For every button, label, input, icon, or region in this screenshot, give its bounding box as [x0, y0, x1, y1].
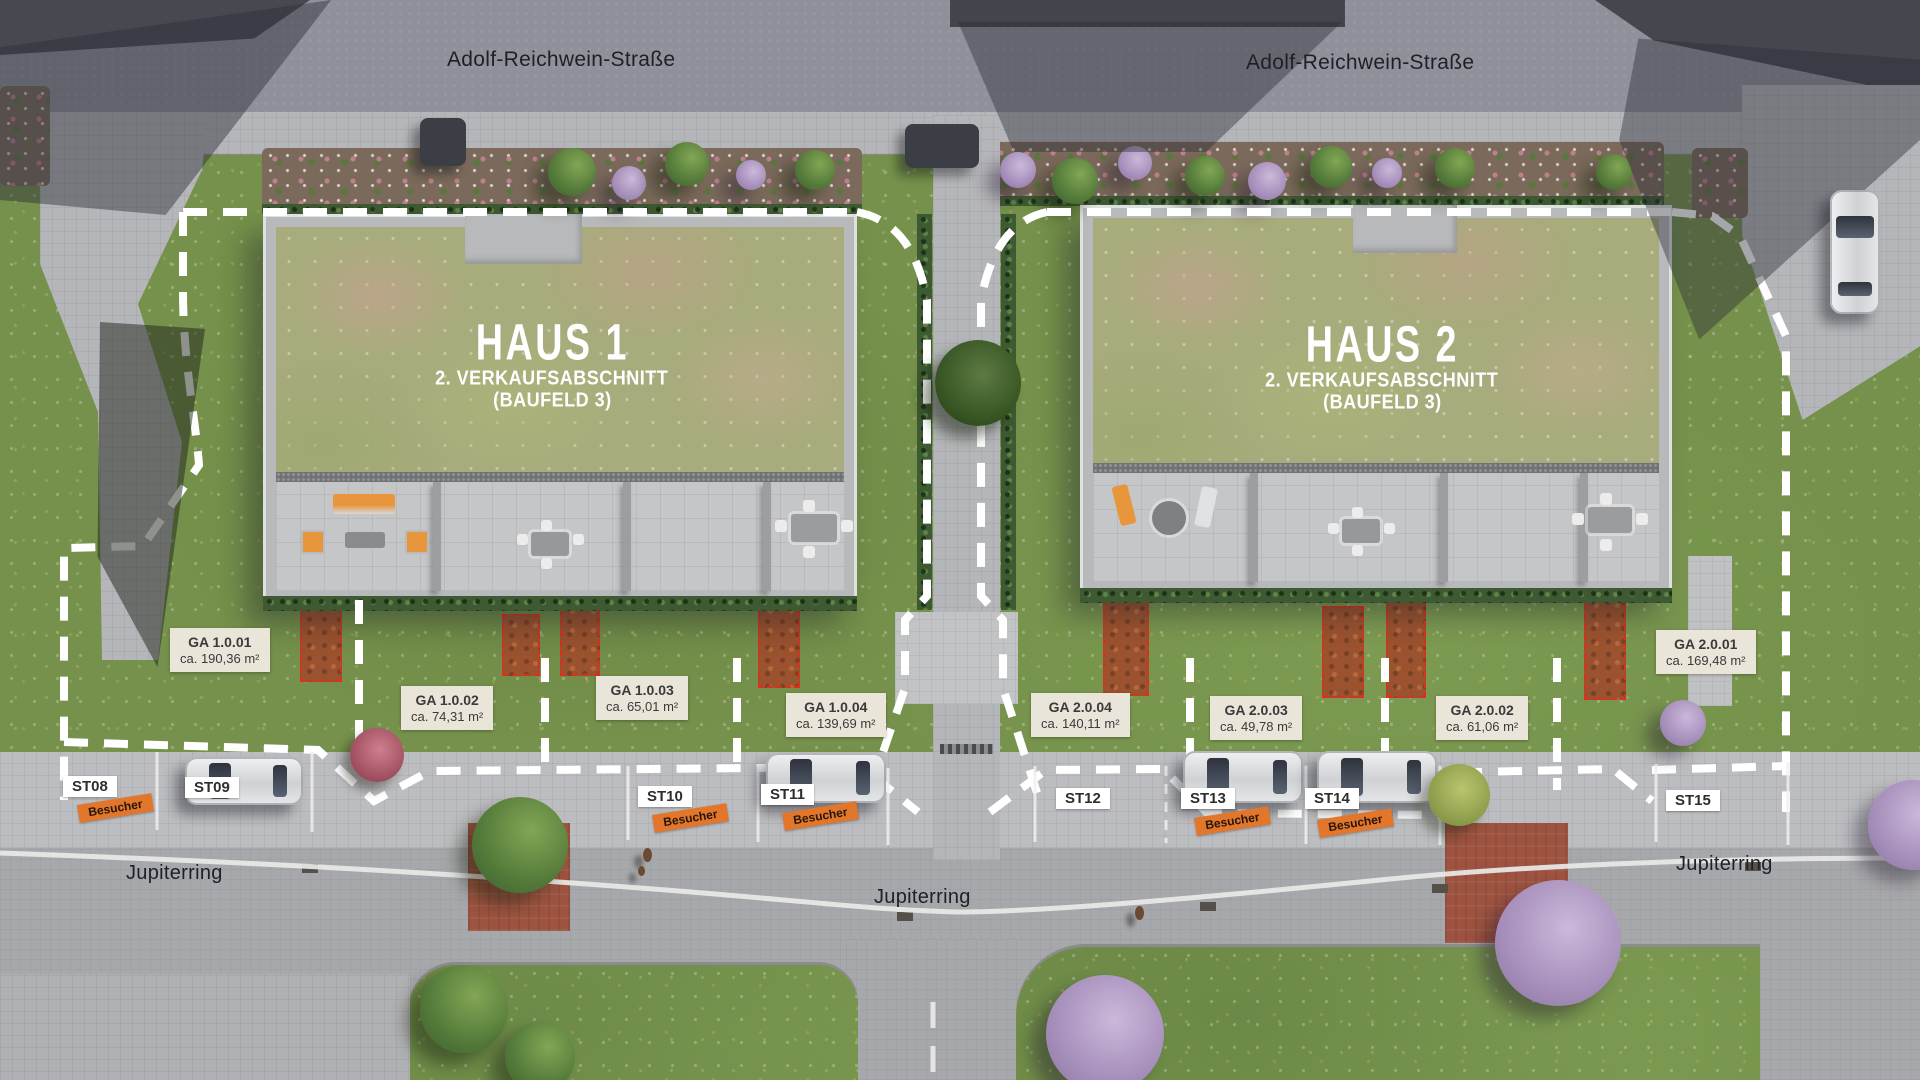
bush — [612, 166, 646, 200]
planting-strip — [0, 86, 50, 186]
tactile-paving — [940, 744, 993, 754]
dining-chair — [1352, 545, 1363, 556]
parking-label-st15[interactable]: ST15 — [1666, 790, 1720, 811]
garden-area-label-ga-2-0-04[interactable]: GA 2.0.04 ca. 140,11 m² — [1031, 693, 1130, 737]
parking-label-st11[interactable]: ST11 — [761, 784, 814, 805]
planting-bed — [560, 600, 600, 676]
parking-label-st12[interactable]: ST12 — [1056, 788, 1110, 809]
haus-2-front-hedge — [1080, 588, 1672, 603]
dining-chair — [573, 534, 584, 545]
bush — [736, 160, 766, 190]
pedestrian — [643, 848, 652, 862]
pedestrian — [1135, 906, 1144, 920]
bush — [1118, 146, 1152, 180]
street-drain — [1432, 884, 1448, 893]
dining-table — [791, 514, 837, 542]
dining-chair — [1636, 513, 1648, 525]
street-label-adolf-reichwein-east: Adolf-Reichwein-Straße — [1246, 51, 1474, 75]
terrace-wall — [1580, 473, 1588, 582]
hedge-row — [262, 204, 862, 214]
haus-1-front-hedge — [263, 596, 857, 611]
dining-chair — [1600, 493, 1612, 505]
tree-purple — [1660, 700, 1706, 746]
bush — [1248, 162, 1286, 200]
parking-label-st14[interactable]: ST14 — [1305, 788, 1359, 809]
street-jupiterring-branch — [846, 940, 1022, 1080]
rose-bush — [350, 728, 404, 782]
street-label-jupiterring-west: Jupiterring — [126, 862, 223, 885]
street-drain — [897, 912, 913, 921]
dining-table — [1342, 519, 1380, 543]
bush — [1310, 146, 1352, 188]
vehicle — [420, 118, 466, 166]
parking-label-st13[interactable]: ST13 — [1181, 788, 1235, 809]
street-drain — [302, 864, 318, 873]
tree-purple — [1495, 880, 1621, 1006]
terrace-wall — [433, 482, 441, 591]
neighbor-roof — [950, 0, 1345, 27]
dining-chair — [1384, 523, 1395, 534]
dining-chair — [541, 558, 552, 569]
parking-label-st10[interactable]: ST10 — [638, 786, 692, 807]
bush — [1000, 152, 1036, 188]
haus-2-roof-notch — [1353, 205, 1457, 253]
planting-bed — [502, 614, 540, 676]
pavement-south-west — [0, 974, 410, 1080]
dining-table — [531, 532, 569, 556]
bush — [1596, 154, 1632, 190]
haus-2-name: HAUS 2 — [1305, 314, 1458, 373]
garden-area-label-ga-1-0-02[interactable]: GA 1.0.02 ca. 74,31 m² — [401, 686, 493, 730]
bush — [1435, 148, 1475, 188]
haus-1-name: HAUS 1 — [475, 312, 628, 371]
dining-table — [1588, 507, 1632, 533]
garden-area-label-ga-2-0-01[interactable]: GA 2.0.01 ca. 169,48 m² — [1656, 630, 1756, 674]
bush — [1052, 158, 1098, 204]
planting-bed — [1386, 600, 1426, 698]
dining-chair — [541, 520, 552, 531]
street-label-adolf-reichwein-west: Adolf-Reichwein-Straße — [447, 48, 675, 72]
dining-chair — [775, 520, 787, 532]
tree — [472, 797, 568, 893]
planting-bed — [758, 600, 800, 688]
footpath-hedge — [917, 214, 932, 610]
dining-chair — [1352, 507, 1363, 518]
dining-chair — [1600, 539, 1612, 551]
bush — [1372, 158, 1402, 188]
terrace-wall — [763, 482, 771, 591]
haus-2-title[interactable]: HAUS 2 2. VERKAUFSABSCHNITT (BAUFELD 3) — [1232, 314, 1532, 414]
dining-chair — [803, 546, 815, 558]
garden-area-label-ga-1-0-04[interactable]: GA 1.0.04 ca. 139,69 m² — [786, 693, 886, 737]
terrace-wall — [623, 482, 631, 591]
planting-bed — [1103, 600, 1149, 696]
haus-2-subtitle: 2. VERKAUFSABSCHNITT — [1265, 369, 1498, 392]
parking-label-st08[interactable]: ST08 — [63, 776, 117, 797]
vehicle — [905, 124, 979, 168]
terrace-wall — [1440, 473, 1448, 582]
tree-yellow — [1428, 764, 1490, 826]
tree — [420, 965, 508, 1053]
bush — [665, 142, 709, 186]
pedestrian — [638, 866, 645, 876]
garden-area-label-ga-1-0-01[interactable]: GA 1.0.01 ca. 190,36 m² — [170, 628, 270, 672]
planting-bed — [1584, 594, 1626, 700]
bush — [548, 148, 596, 196]
haus-1-roof-notch — [465, 214, 582, 264]
dining-chair — [803, 500, 815, 512]
garden-area-label-ga-2-0-03[interactable]: GA 2.0.03 ca. 49,78 m² — [1210, 696, 1302, 740]
round-table — [1152, 501, 1186, 535]
dining-chair — [1328, 523, 1339, 534]
haus-1-subtitle: 2. VERKAUFSABSCHNITT — [435, 367, 668, 390]
site-plan: Adolf-Reichwein-Straße Adolf-Reichwein-S… — [0, 0, 1920, 1080]
bush — [1185, 156, 1225, 196]
lounge-chair — [301, 530, 325, 554]
dining-chair — [841, 520, 853, 532]
footpath-plateau — [895, 612, 1018, 704]
garden-area-label-ga-2-0-02[interactable]: GA 2.0.02 ca. 61,06 m² — [1436, 696, 1528, 740]
lounge-chair — [405, 530, 429, 554]
tree-evergreen — [935, 340, 1021, 426]
street-drain — [1200, 902, 1216, 911]
planting-bed — [1322, 606, 1364, 698]
street-label-jupiterring-center: Jupiterring — [874, 886, 971, 909]
haus-1-title[interactable]: HAUS 1 2. VERKAUFSABSCHNITT (BAUFELD 3) — [402, 312, 702, 412]
dining-chair — [517, 534, 528, 545]
haus-1-subtitle2: (BAUFELD 3) — [493, 389, 612, 412]
haus-2-subtitle2: (BAUFELD 3) — [1323, 391, 1442, 414]
street-label-jupiterring-east: Jupiterring — [1676, 853, 1773, 876]
bush — [795, 150, 835, 190]
left-driveway — [40, 112, 220, 664]
coffee-table — [345, 532, 385, 548]
parked-car — [1830, 190, 1880, 314]
planting-strip — [1692, 148, 1748, 218]
garden-area-label-ga-1-0-03[interactable]: GA 1.0.03 ca. 65,01 m² — [596, 676, 688, 720]
parking-label-st09[interactable]: ST09 — [185, 777, 239, 798]
dining-chair — [1572, 513, 1584, 525]
lounge-sofa — [333, 494, 395, 514]
terrace-wall — [1250, 473, 1258, 582]
